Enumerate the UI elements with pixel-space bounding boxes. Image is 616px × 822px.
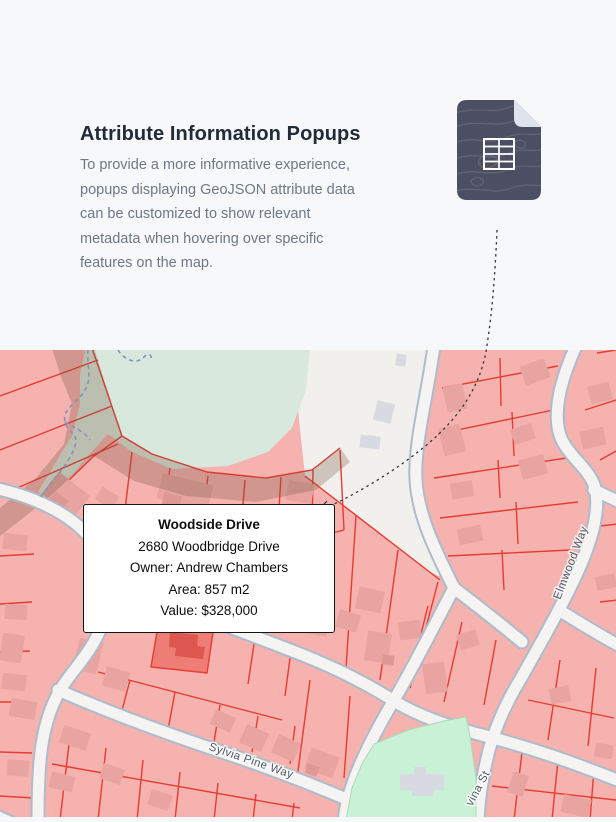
description-line: features on the map. (80, 251, 355, 276)
description-line: To provide a more informative experience… (80, 153, 355, 178)
popup-value: Value: $328,000 (92, 600, 326, 622)
feature-section: { "header": { "title": "Attribute Inform… (0, 0, 616, 817)
folded-corner (514, 100, 541, 127)
description-line: can be customized to show relevant (80, 202, 355, 227)
popup-title: Woodside Drive (92, 514, 326, 536)
popup-area: Area: 857 m2 (92, 579, 326, 601)
page-title: Attribute Information Popups (80, 123, 361, 146)
description-line: metadata when hovering over specific (80, 227, 355, 252)
geojson-file-icon (457, 100, 541, 200)
popup-address: 2680 Woodbridge Drive (92, 536, 326, 558)
popup-owner: Owner: Andrew Chambers (92, 557, 326, 579)
topo-document-icon (457, 100, 541, 200)
map-popup: Woodside Drive 2680 Woodbridge Drive Own… (83, 504, 335, 633)
page-description: To provide a more informative experience… (80, 153, 355, 276)
description-line: popups displaying GeoJSON attribute data (80, 178, 355, 203)
